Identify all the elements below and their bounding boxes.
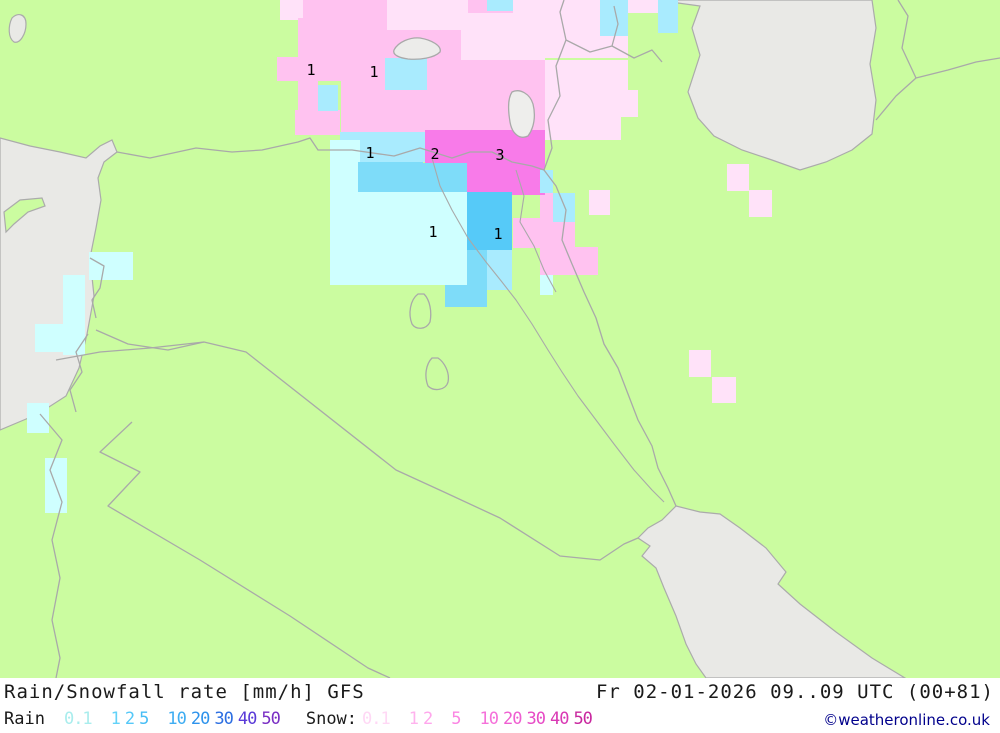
map-title: Rain/Snowfall rate [mm/h] GFS	[4, 681, 365, 703]
rain-scale: 0.11251020304050	[45, 709, 280, 729]
snow-scale-value: 40	[550, 709, 568, 729]
map-value-label: 1	[428, 223, 437, 241]
snow-scale: 0.11251020304050	[357, 709, 592, 729]
rain-scale-value: 40	[238, 709, 256, 729]
weather-map-page: 1112311 Rain/Snowfall rate [mm/h] GFS Fr…	[0, 0, 1000, 733]
title-row: Rain/Snowfall rate [mm/h] GFS Fr 02-01-2…	[0, 679, 1000, 705]
rain-scale-value: 1	[111, 709, 120, 729]
rain-scale-value: 20	[191, 709, 209, 729]
rain-scale-label: Rain	[4, 709, 45, 729]
map-value-label: 1	[369, 63, 378, 81]
map-value-label: 3	[495, 146, 504, 164]
map-value-label: 1	[306, 61, 315, 79]
snow-scale-value: 30	[526, 709, 544, 729]
rain-scale-value: 10	[167, 709, 185, 729]
map-value-label: 1	[365, 144, 374, 162]
legend-bar: Rain/Snowfall rate [mm/h] GFS Fr 02-01-2…	[0, 678, 1000, 733]
snow-scale-value: 50	[573, 709, 591, 729]
map-value-label: 2	[430, 145, 439, 163]
snow-scale-value: 20	[503, 709, 521, 729]
copyright-credit: ©weatheronline.co.uk	[823, 711, 990, 729]
map-datetime: Fr 02-01-2026 09..09 UTC (00+81)	[596, 681, 994, 703]
snow-scale-value: 10	[480, 709, 498, 729]
snow-scale-value: 2	[423, 709, 432, 729]
rain-scale-value: 0.1	[64, 709, 92, 729]
forecast-map: 1112311	[0, 0, 1000, 678]
rain-scale-value: 5	[139, 709, 148, 729]
snow-scale-value: 5	[451, 709, 460, 729]
map-value-labels: 1112311	[0, 0, 1000, 678]
map-value-label: 1	[493, 225, 502, 243]
snow-scale-value: 0.1	[362, 709, 390, 729]
snow-scale-label: Snow:	[306, 709, 357, 729]
snow-scale-value: 1	[409, 709, 418, 729]
rain-scale-value: 2	[125, 709, 134, 729]
rain-scale-value: 50	[261, 709, 279, 729]
rain-scale-value: 30	[214, 709, 232, 729]
